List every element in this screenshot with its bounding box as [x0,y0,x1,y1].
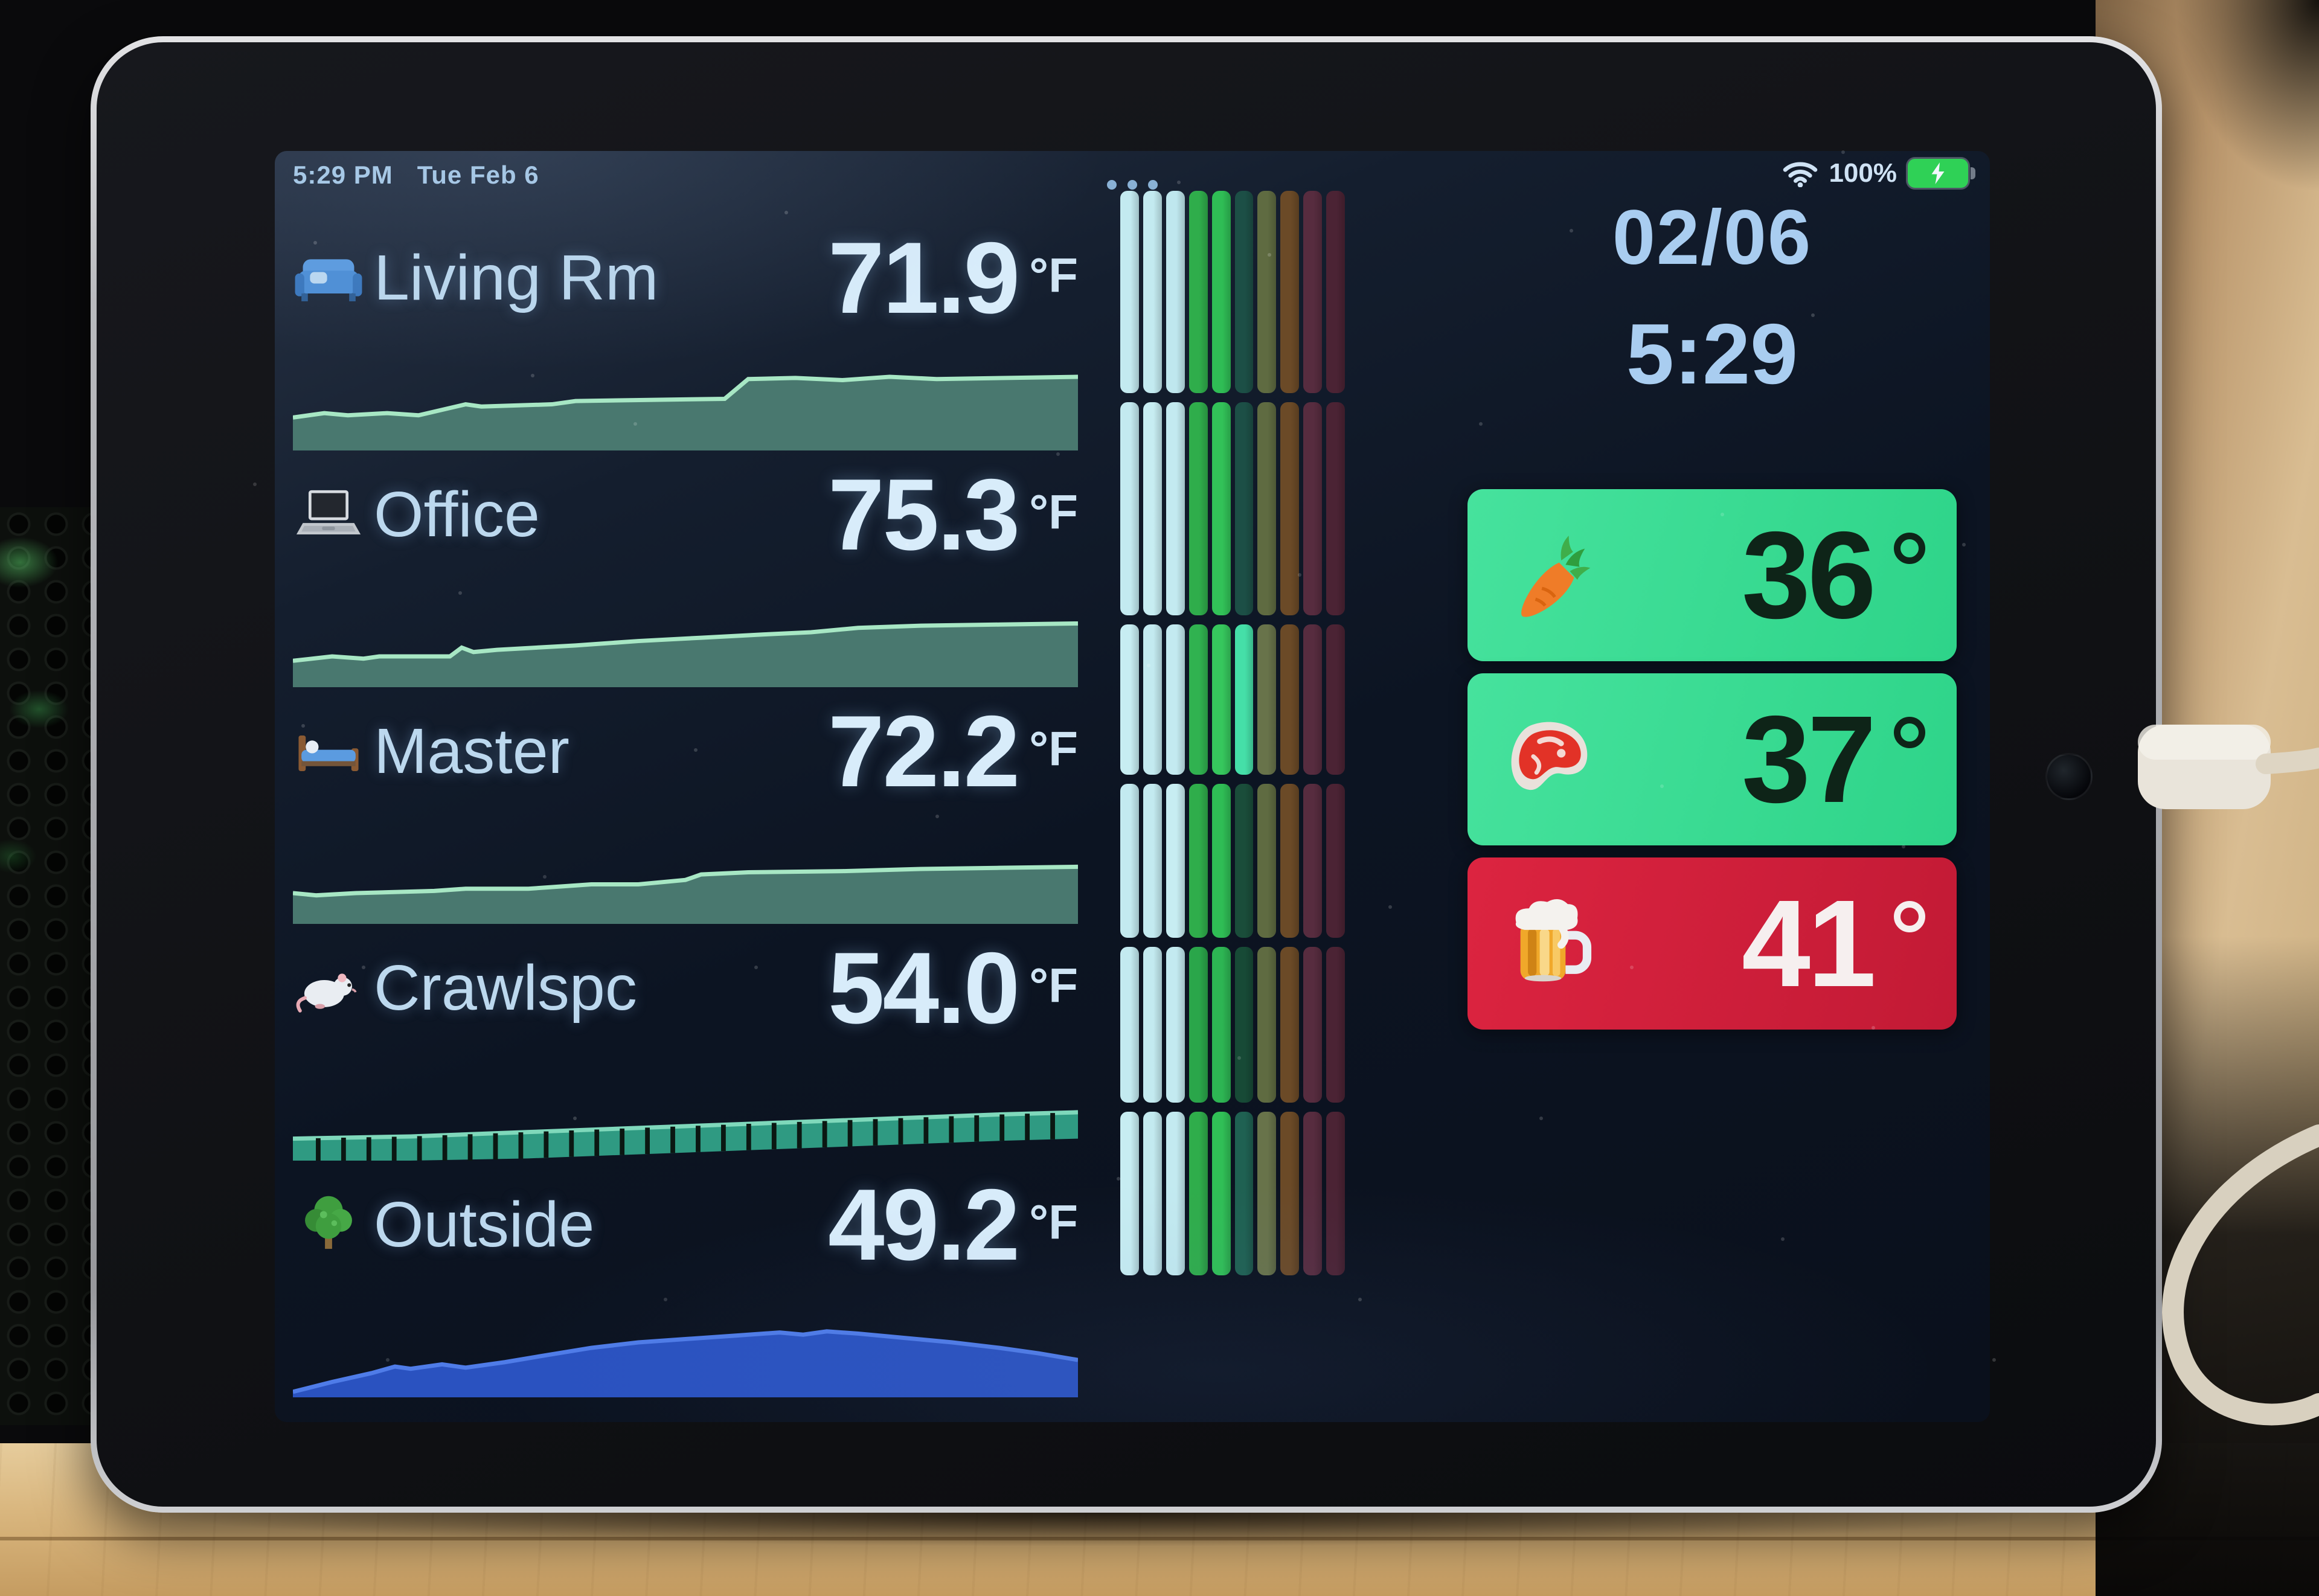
clock-widget: 02/06 5:29 [1467,193,1957,404]
kegerator-tile[interactable]: 41 [1467,857,1957,1030]
strip-cell [1235,191,1254,393]
room-name: Outside [374,1188,594,1261]
multitask-handle-icon[interactable] [1107,180,1158,190]
carrot-icon [1499,522,1606,629]
room-name: Crawlspc [374,952,637,1025]
room-row-outside[interactable]: Outside 49.2 °F [293,1164,1078,1401]
strip-cell [1212,624,1231,775]
couch-icon [293,242,364,313]
strip-block [1120,1112,1345,1275]
front-camera [2045,753,2093,800]
strip-cell [1257,191,1276,393]
strip-block [1120,191,1345,393]
room-trend-chart [293,577,1078,687]
strip-cell [1303,624,1322,775]
strip-cell [1212,947,1231,1103]
strip-cell [1166,1112,1185,1275]
room-temp: 75.3 [828,457,1018,573]
strip-block [1120,947,1345,1103]
strip-cell [1326,947,1345,1103]
room-temp: 71.9 [828,220,1018,336]
degree-icon [1894,717,1925,748]
strip-cell [1143,402,1162,615]
degree-icon [1894,901,1925,932]
strip-cell [1257,1112,1276,1275]
strip-cell [1166,402,1185,615]
strip-cell [1189,624,1208,775]
strip-cell [1189,784,1208,938]
strip-block [1120,784,1345,938]
room-trend-chart [293,1051,1078,1161]
strip-cell [1326,624,1345,775]
steak-icon [1499,706,1606,813]
room-row-living[interactable]: Living Rm 71.9 °F [293,217,1078,454]
strip-cell [1235,624,1254,775]
room-temp-unit: °F [1029,1194,1078,1255]
room-temp-unit: °F [1029,484,1078,545]
strip-cell [1326,784,1345,938]
strip-cell [1303,784,1322,938]
strip-cell [1257,947,1276,1103]
room-name: Master [374,715,569,788]
strip-cell [1212,784,1231,938]
strip-cell [1212,1112,1231,1275]
strip-cell [1326,1112,1345,1275]
rat-icon [293,952,364,1024]
strip-cell [1303,1112,1322,1275]
strip-cell [1280,191,1299,393]
strip-block [1120,402,1345,615]
strip-cell [1166,624,1185,775]
strip-block [1120,624,1345,775]
shadow-top-right [2174,0,2319,193]
room-temp: 54.0 [828,930,1018,1046]
status-bar-right: 100% [1783,158,1968,188]
strip-cell [1166,191,1185,393]
strip-cell [1280,624,1299,775]
tree-icon [293,1189,364,1260]
room-list: Living Rm 71.9 °F [293,217,1078,1401]
strip-cell [1303,402,1322,615]
strip-cell [1257,784,1276,938]
strip-cell [1120,191,1139,393]
room-trend-chart [293,341,1078,450]
strip-cell [1326,191,1345,393]
strip-cell [1189,191,1208,393]
room-temp-unit: °F [1029,248,1078,308]
strip-cell [1280,784,1299,938]
status-bar-left: 5:29 PM Tue Feb 6 [293,161,539,190]
tile-value: 36 [1742,513,1873,637]
freezer-tile[interactable]: 37 [1467,673,1957,845]
room-trend-chart [293,1287,1078,1397]
wifi-icon [1783,159,1818,187]
strip-cell [1235,784,1254,938]
strip-cell [1303,191,1322,393]
strip-cell [1257,402,1276,615]
clock-time: 5:29 [1467,305,1957,404]
strip-cell [1235,1112,1254,1275]
strip-cell [1280,1112,1299,1275]
dust-specks [0,0,2,2]
strip-cell [1280,947,1299,1103]
strip-cell [1303,947,1322,1103]
battery-percent: 100% [1829,158,1897,188]
strip-cell [1120,784,1139,938]
room-row-office[interactable]: Office 75.3 °F [293,454,1078,691]
ipad-tablet: 5:29 PM Tue Feb 6 100% [91,36,2162,1513]
room-row-crawlspace[interactable]: Crawlspc 54.0 °F [293,928,1078,1164]
bed-icon [293,716,364,787]
clock-date: 02/06 [1467,193,1957,282]
beer-icon [1499,890,1606,998]
strip-cell [1280,402,1299,615]
room-name: Living Rm [374,242,658,315]
strip-cell [1212,191,1231,393]
strip-cell [1120,624,1139,775]
room-row-master[interactable]: Master 72.2 °F [293,691,1078,928]
degree-icon [1894,533,1925,564]
status-time: 5:29 PM [293,161,393,190]
strip-cell [1143,784,1162,938]
strip-cell [1143,191,1162,393]
tile-value: 41 [1742,882,1873,1005]
strip-cell [1326,402,1345,615]
tablet-bezel: 5:29 PM Tue Feb 6 100% [97,42,2156,1507]
strip-cell [1120,1112,1139,1275]
strip-cell [1166,784,1185,938]
strip-cell [1143,1112,1162,1275]
room-temp: 72.2 [828,693,1018,810]
room-temp-unit: °F [1029,721,1078,781]
strip-cell [1166,947,1185,1103]
strip-chart [1120,191,1345,1275]
laptop-icon [293,479,364,550]
room-name: Office [374,478,540,551]
strip-cell [1212,402,1231,615]
battery-charging-icon [1908,159,1968,188]
strip-cell [1235,402,1254,615]
strip-cell [1120,947,1139,1103]
room-trend-chart [293,814,1078,924]
tile-value: 37 [1742,697,1873,821]
room-temp: 49.2 [828,1167,1018,1283]
strip-cell [1143,947,1162,1103]
status-date: Tue Feb 6 [417,161,539,190]
photo-scene: 5:29 PM Tue Feb 6 100% [0,0,2319,1596]
strip-cell [1120,402,1139,615]
tablet-screen: 5:29 PM Tue Feb 6 100% [275,151,1990,1422]
strip-cell [1189,1112,1208,1275]
fridge-tile[interactable]: 36 [1467,489,1957,661]
strip-cell [1143,624,1162,775]
room-temp-unit: °F [1029,958,1078,1018]
strip-cell [1235,947,1254,1103]
strip-cell [1189,402,1208,615]
strip-cell [1257,624,1276,775]
strip-cell [1189,947,1208,1103]
